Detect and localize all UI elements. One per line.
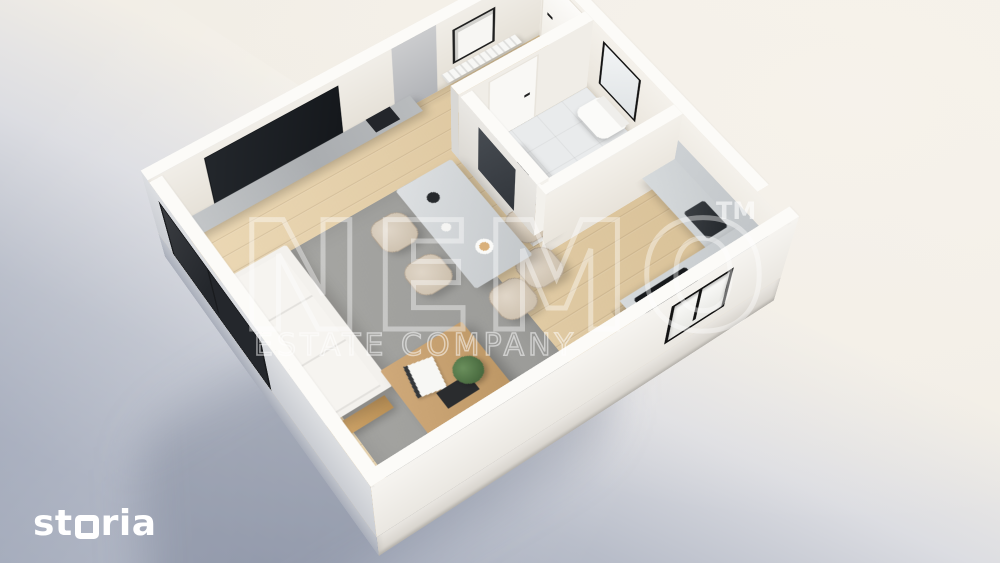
storia-square-o-icon xyxy=(75,515,99,539)
door-handle xyxy=(547,12,552,20)
real-estate-render: NEMO ESTATE COMPANY TM st ria xyxy=(0,0,1000,563)
watermark-tagline: ESTATE COMPANY xyxy=(254,328,577,363)
storia-logo-prefix: st xyxy=(33,503,73,544)
storia-logo: st ria xyxy=(33,503,157,544)
bathroom-door-handle xyxy=(524,92,530,97)
storia-logo-suffix: ria xyxy=(101,503,157,544)
trademark-symbol: TM xyxy=(716,197,756,225)
